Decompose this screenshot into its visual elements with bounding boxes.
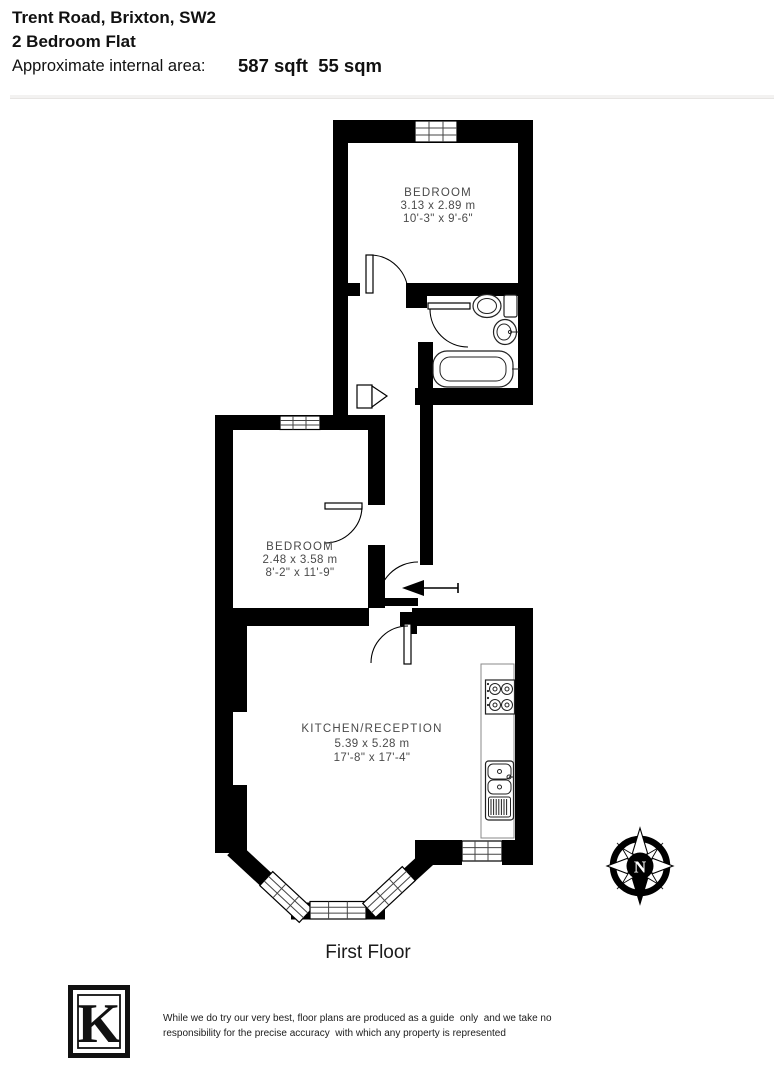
stove-icon — [486, 680, 515, 714]
svg-text:10'-3" x 9'-6": 10'-3" x 9'-6" — [403, 213, 473, 225]
logo-letter: K — [77, 993, 121, 1055]
floor-plan-svg: BEDROOM 3.13 x 2.89 m 10'-3" x 9'-6" BED… — [0, 0, 784, 1080]
sink-icon — [494, 320, 520, 345]
bathtub-icon — [433, 351, 520, 387]
compass-north-letter: N — [634, 858, 647, 877]
floor-label: First Floor — [325, 942, 411, 963]
door-kitchen — [371, 624, 411, 664]
entrance-arrow-icon — [402, 580, 458, 596]
svg-text:17'-8" x 17'-4": 17'-8" x 17'-4" — [334, 752, 411, 764]
svg-text:8'-2" x 11'-9": 8'-2" x 11'-9" — [265, 567, 334, 579]
door-bedroom2 — [325, 503, 362, 543]
door-bathroom — [428, 303, 470, 347]
window-icon-bay-right — [363, 867, 415, 918]
cupboard-door — [357, 385, 387, 408]
agency-logo: K — [71, 988, 128, 1056]
disclaimer-line-1: While we do try our very best, floor pla… — [163, 1013, 552, 1024]
bedroom-2-label: BEDROOM 2.48 x 3.58 m 8'-2" x 11'-9" — [263, 541, 338, 579]
svg-text:BEDROOM: BEDROOM — [404, 187, 472, 199]
floorplan-page: Trent Road, Brixton, SW2 2 Bedroom Flat … — [0, 0, 784, 1080]
window-icon-bay-bottom — [310, 902, 366, 920]
kitchen-sink-icon — [486, 761, 514, 820]
window-icon-bedroom2 — [280, 416, 320, 430]
svg-text:5.39 x 5.28 m: 5.39 x 5.28 m — [335, 738, 410, 750]
svg-text:BEDROOM: BEDROOM — [266, 541, 334, 553]
disclaimer-line-2: responsibility for the precise accuracy … — [163, 1028, 506, 1039]
window-icon-kitchen-right — [462, 841, 502, 861]
svg-text:KITCHEN/RECEPTION: KITCHEN/RECEPTION — [301, 723, 442, 735]
kitchen-reception-label: KITCHEN/RECEPTION 5.39 x 5.28 m 17'-8" x… — [301, 723, 442, 764]
compass-rose-icon: N — [607, 828, 673, 904]
door-bedroom1 — [366, 255, 408, 293]
window-icon-bay-left — [260, 872, 312, 923]
toilet-icon — [473, 295, 517, 318]
svg-text:2.48 x 3.58 m: 2.48 x 3.58 m — [263, 554, 338, 566]
bedroom-1-label: BEDROOM 3.13 x 2.89 m 10'-3" x 9'-6" — [401, 187, 476, 225]
svg-text:3.13 x 2.89 m: 3.13 x 2.89 m — [401, 200, 476, 212]
window-icon-bedroom1 — [415, 121, 457, 142]
disclaimer: While we do try our very best, floor pla… — [163, 1013, 552, 1039]
